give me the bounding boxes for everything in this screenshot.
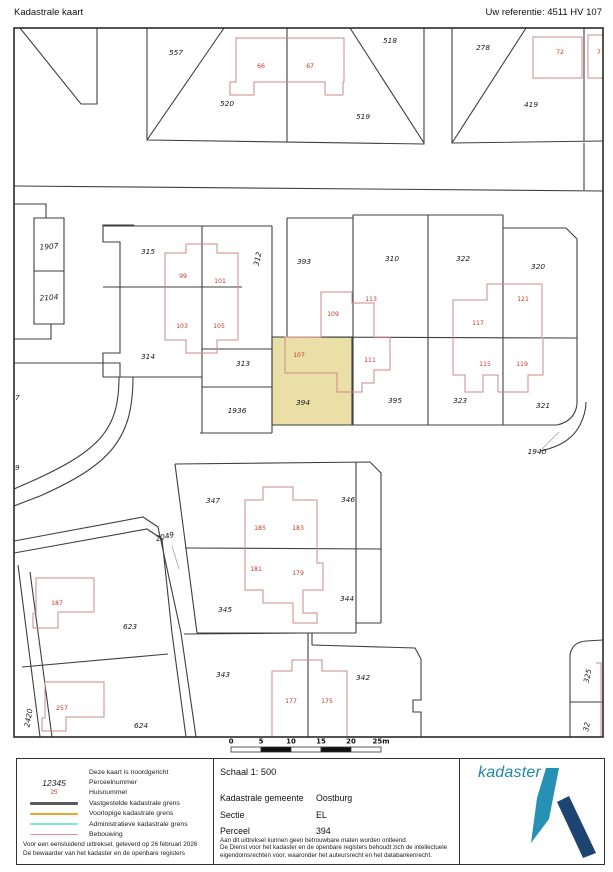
legend-sample-1: 12345 xyxy=(23,778,85,788)
field-row-0: Kadastrale gemeenteOostburg xyxy=(220,793,458,810)
house-number-107: 107 xyxy=(293,352,305,359)
scalebar-segment-4 xyxy=(351,747,381,752)
parcel-label-557: 557 xyxy=(169,48,183,57)
parcel-label-346: 346 xyxy=(341,495,355,504)
house-number-67: 67 xyxy=(306,63,314,70)
legend-row-4: Voorlopige kadastrale grens xyxy=(23,809,223,819)
house-number-115: 115 xyxy=(479,361,491,368)
legend-footer: Voor een eensluidend uittreksel, gelever… xyxy=(23,841,197,858)
scale-text: Schaal 1: 500 xyxy=(220,767,458,777)
parcel-boundary-1 xyxy=(14,186,603,191)
scalebar-segment-3 xyxy=(321,747,351,752)
parcel-label-09: 09 xyxy=(10,463,20,472)
disclaimer-line-0: Aan dit uittreksel kunnen geen betrouwba… xyxy=(220,837,447,844)
legend-info-column: Schaal 1: 500 Kadastrale gemeenteOostbur… xyxy=(220,767,458,843)
parcel-boundary-30 xyxy=(557,404,577,425)
parcel-boundary-39 xyxy=(185,548,381,549)
building-outline-1 xyxy=(533,37,582,78)
house-number-72: 72 xyxy=(556,49,564,56)
legend-label-2: Huisnummer xyxy=(85,789,128,796)
parcel-label-322: 322 xyxy=(456,254,470,263)
parcel-label-344: 344 xyxy=(340,594,354,603)
highlighted-parcel-394 xyxy=(272,337,352,425)
parcel-label-347: 347 xyxy=(206,496,220,505)
parcel-label-323: 323 xyxy=(453,396,467,405)
disclaimer-line-2: eigendomsrechten voor, waaronder het aut… xyxy=(220,852,447,859)
parcel-label-343: 343 xyxy=(216,670,230,679)
parcel-label-312: 312 xyxy=(252,251,264,267)
legend-row-0: Deze kaart is noordgericht xyxy=(23,767,223,777)
parcel-boundary-36 xyxy=(14,377,119,489)
house-number-121: 121 xyxy=(517,296,529,303)
house-number-185: 185 xyxy=(254,525,266,532)
building-outline-10 xyxy=(596,663,601,737)
footer-line-2: De bewaarder van het kadaster en de open… xyxy=(23,850,197,859)
parcel-label-32: 32 xyxy=(581,721,592,732)
scalebar-label-10: 10 xyxy=(286,738,296,746)
house-number-111: 111 xyxy=(364,357,376,364)
parcel-boundary-44 xyxy=(14,529,186,737)
parcel-boundary-34 xyxy=(14,363,120,377)
leader-line-0 xyxy=(172,546,179,569)
house-number-99: 99 xyxy=(179,273,187,280)
parcel-label-394: 394 xyxy=(296,398,310,407)
parcel-boundary-43 xyxy=(14,517,196,737)
parcel-boundary-2 xyxy=(147,28,424,144)
field-value-0: Oostburg xyxy=(316,793,352,803)
kadaster-logo-text: kadaster xyxy=(478,764,541,782)
legend-row-6: Bebouwing xyxy=(23,829,223,839)
legend-line-swatch-6 xyxy=(30,834,78,836)
building-outline-9 xyxy=(272,660,347,737)
legend-row-1: 12345Perceelnummer xyxy=(23,777,223,787)
logo-navy-shape xyxy=(557,796,596,858)
cadastral-map: 5575205185192784191907210431531431231319… xyxy=(0,0,613,872)
parcel-label-624: 624 xyxy=(134,721,148,730)
field-label-0: Kadastrale gemeente xyxy=(220,793,316,803)
scalebar-label-20: 20 xyxy=(346,738,356,746)
disclaimer-line-1: De Dienst voor het kadaster en de openba… xyxy=(220,844,447,851)
building-outline-8 xyxy=(42,682,104,731)
parcel-label-310: 310 xyxy=(385,254,399,263)
house-number-181: 181 xyxy=(250,566,262,573)
house-number-101: 101 xyxy=(214,278,226,285)
scalebar-label-0: 0 xyxy=(229,738,234,746)
house-number-117: 117 xyxy=(472,320,484,327)
parcel-label-1940: 1940 xyxy=(528,447,547,456)
parcel-label-518: 518 xyxy=(383,36,397,45)
parcel-label-419: 419 xyxy=(524,100,538,109)
parcel-label-07: 07 xyxy=(10,393,20,402)
legend-panel: Deze kaart is noordgericht12345Perceelnu… xyxy=(16,758,605,865)
legend-label-0: Deze kaart is noordgericht xyxy=(85,769,168,776)
house-number-105: 105 xyxy=(213,323,225,330)
legend-row-5: Administratieve kadastrale grens xyxy=(23,819,223,829)
house-number-257: 257 xyxy=(56,705,68,712)
parcel-label-342: 342 xyxy=(356,673,370,682)
building-outline-2 xyxy=(588,35,610,78)
parcel-boundary-35 xyxy=(14,377,133,506)
parcel-label-623: 623 xyxy=(123,622,137,631)
legend-line-swatch-5 xyxy=(30,823,78,825)
parcel-boundary-13 xyxy=(14,324,51,339)
parcel-label-393: 393 xyxy=(297,257,311,266)
house-number-175: 175 xyxy=(321,698,333,705)
legend-row-2: 25Huisnummer xyxy=(23,788,223,798)
parcel-label-2104: 2104 xyxy=(39,292,59,302)
house-number-119: 119 xyxy=(516,361,528,368)
house-number-113: 113 xyxy=(365,296,377,303)
parcel-boundary-3 xyxy=(147,28,224,140)
scale-bar: 0510152025m xyxy=(229,738,390,753)
scalebar-label-25m: 25m xyxy=(372,738,389,746)
legend-sample-2: 25 xyxy=(23,789,85,796)
parcel-boundary-5 xyxy=(350,28,424,143)
footer-line-1: Voor een eensluidend uittreksel, gelever… xyxy=(23,841,197,850)
parcel-label-345: 345 xyxy=(218,605,232,614)
scalebar-segment-2 xyxy=(291,747,321,752)
field-row-1: SectieEL xyxy=(220,810,458,827)
parcel-label-520: 520 xyxy=(220,99,234,108)
field-label-2: Perceel xyxy=(220,826,316,836)
disclaimer-text: Aan dit uittreksel kunnen geen betrouwba… xyxy=(220,837,447,859)
parcel-label-325: 325 xyxy=(582,668,594,684)
parcel-boundary-50 xyxy=(312,645,421,737)
legend-line-swatch-3 xyxy=(30,802,78,805)
scalebar-label-5: 5 xyxy=(259,738,264,746)
building-outline-7 xyxy=(33,578,94,628)
house-number-183: 183 xyxy=(292,525,304,532)
field-label-1: Sectie xyxy=(220,810,316,820)
parcel-label-519: 519 xyxy=(356,112,370,121)
parcel-label-2420: 2420 xyxy=(22,708,34,728)
cadastral-extract-page: { "header": { "title": "Kadastrale kaart… xyxy=(0,0,613,872)
parcel-label-395: 395 xyxy=(388,396,402,405)
parcel-label-321: 321 xyxy=(536,401,550,410)
parcel-boundary-45 xyxy=(22,654,168,667)
parcel-label-320: 320 xyxy=(531,262,545,271)
parcel-label-1936: 1936 xyxy=(228,406,247,415)
house-number-66: 66 xyxy=(257,63,265,70)
house-number-109: 109 xyxy=(327,311,339,318)
legend-label-1: Perceelnummer xyxy=(85,779,137,786)
scalebar-segment-1 xyxy=(261,747,291,752)
legend-sample-5 xyxy=(23,823,85,825)
house-number-177: 177 xyxy=(285,698,297,705)
parcel-label-313: 313 xyxy=(236,359,250,368)
legend-label-5: Administratieve kadastrale grens xyxy=(85,821,188,828)
map-content: 5575205185192784191907210431531431231319… xyxy=(10,28,610,737)
field-value-2: 394 xyxy=(316,826,331,836)
parcel-boundary-29 xyxy=(503,228,577,404)
parcel-boundary-10 xyxy=(14,204,46,218)
parcel-label-2049: 2049 xyxy=(155,530,176,543)
parcel-boundary-6 xyxy=(452,28,603,143)
legend-sample-3 xyxy=(23,802,85,805)
legend-sample-6 xyxy=(23,834,85,836)
parcel-label-314: 314 xyxy=(141,352,155,361)
legend-label-3: Vastgestelde kadastrale grens xyxy=(85,800,180,807)
house-number-7: 7 xyxy=(597,49,601,56)
legend-sample-text-2: 25 xyxy=(51,789,58,796)
legend-sample-4 xyxy=(23,813,85,815)
parcel-boundary-14 xyxy=(103,225,134,377)
legend-label-4: Voorlopige kadastrale grens xyxy=(85,810,173,817)
legend-sample-text-1: 12345 xyxy=(42,778,66,788)
legend-label-6: Bebouwing xyxy=(85,831,123,838)
scalebar-segment-0 xyxy=(231,747,261,752)
legend-line-swatch-4 xyxy=(30,813,78,815)
house-number-103: 103 xyxy=(176,323,188,330)
house-number-187: 187 xyxy=(51,600,63,607)
legend-row-3: Vastgestelde kadastrale grens xyxy=(23,798,223,808)
parcel-label-278: 278 xyxy=(476,43,490,52)
legend-symbol-list: Deze kaart is noordgericht12345Perceelnu… xyxy=(23,767,223,840)
parcel-fields: Kadastrale gemeenteOostburgSectieELPerce… xyxy=(220,793,458,843)
building-outline-6 xyxy=(245,487,323,623)
parcel-label-1907: 1907 xyxy=(39,241,59,251)
house-number-179: 179 xyxy=(292,570,304,577)
scalebar-label-15: 15 xyxy=(316,738,326,746)
parcel-label-315: 315 xyxy=(141,247,155,256)
kadaster-logo: kadaster xyxy=(460,759,605,864)
parcel-boundary-0 xyxy=(20,28,97,104)
field-value-1: EL xyxy=(316,810,327,820)
